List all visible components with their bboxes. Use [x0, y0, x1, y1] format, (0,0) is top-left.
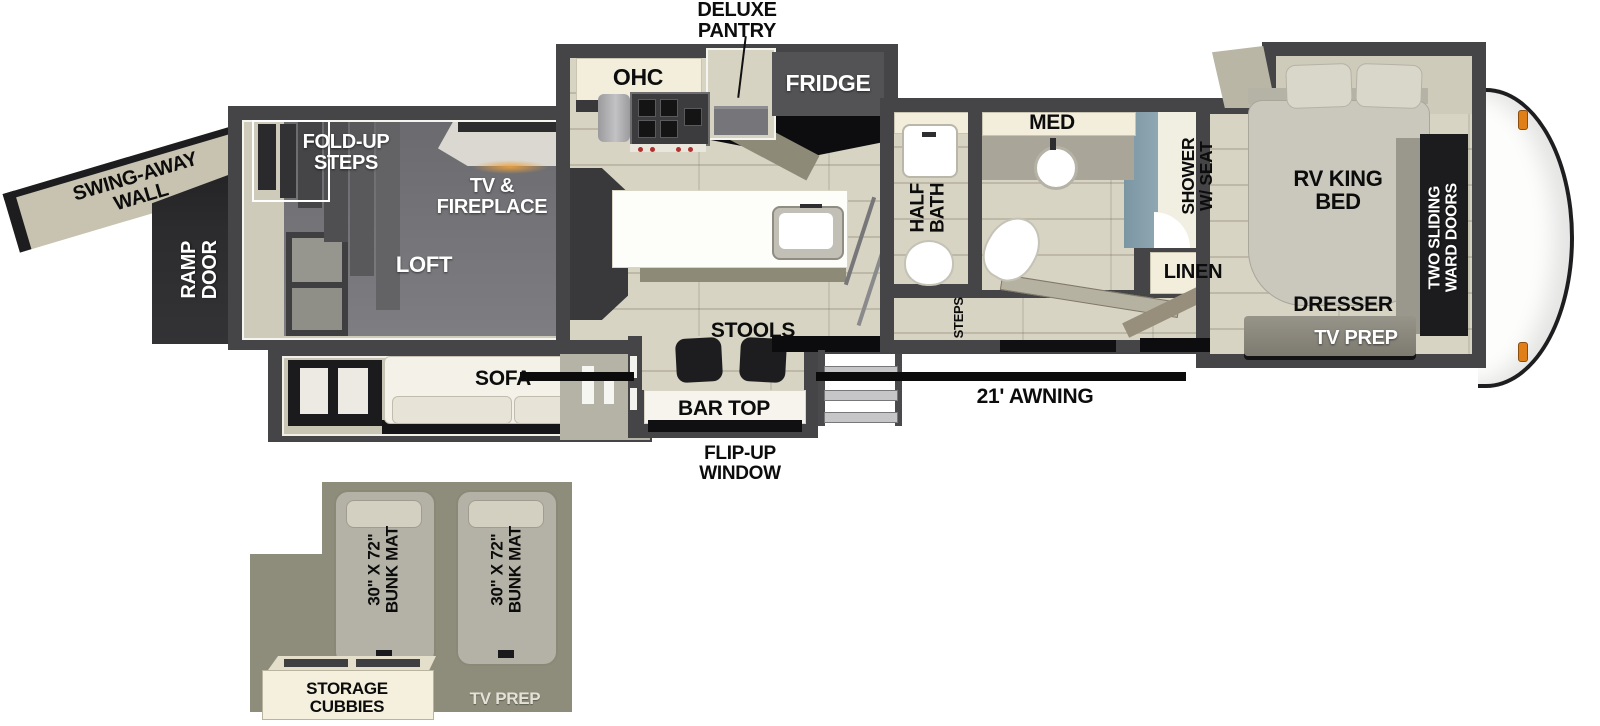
pillow: [1285, 63, 1352, 109]
ward-doors-label: TWO SLIDING WARD DOORS: [1427, 173, 1460, 303]
entry-steps: [818, 350, 902, 428]
stove-knob-icon: [650, 147, 655, 152]
fridge-label: FRIDGE: [778, 72, 878, 96]
stove-knob-icon: [638, 147, 643, 152]
faucet-icon: [1050, 138, 1056, 150]
kitchen-sink: [772, 206, 844, 260]
threshold-window: [1000, 340, 1116, 352]
stools-label: STOOLS: [708, 320, 798, 342]
pantry-shelves: [714, 106, 768, 135]
stove-knob-icon: [688, 147, 693, 152]
med-label: MED: [1002, 112, 1102, 134]
half-bath-label: HALF BATH: [908, 163, 948, 253]
deluxe-pantry-label: DELUXE PANTRY: [687, 0, 787, 42]
clearance-light-icon: [1518, 110, 1528, 130]
burner-icon: [660, 120, 678, 138]
window-pane: [292, 288, 342, 330]
tv-icon: [458, 122, 566, 132]
faucet-icon: [922, 132, 936, 137]
storage-cubbies-label: STORAGE CUBBIES: [292, 680, 402, 715]
awning-label: 21' AWNING: [960, 386, 1110, 408]
awning-line: [816, 372, 1186, 381]
stove-knob-icon: [676, 147, 681, 152]
bath-sink: [1034, 146, 1078, 190]
steps-label: STEPS: [952, 290, 966, 346]
sofa-seat-cushion: [392, 396, 512, 424]
wardrobe-door-panel: [1396, 138, 1420, 334]
bath-divider-wall: [968, 98, 982, 292]
dresser-label: DRESSER: [1288, 294, 1398, 316]
step-rung: [824, 412, 898, 423]
appliance: [598, 94, 630, 142]
window-pane: [338, 368, 368, 414]
linen-label: LINEN: [1143, 262, 1243, 283]
pillow: [1355, 63, 1422, 109]
threshold-window: [1140, 338, 1214, 352]
burner-icon: [684, 108, 702, 126]
slideout-window: [288, 360, 382, 426]
rv-king-bed-label: RV KING BED: [1288, 168, 1388, 214]
bunk-mat-label: 30" X 72" BUNK MAT: [488, 520, 523, 620]
window-pane: [300, 368, 328, 414]
bar-stool: [675, 337, 723, 383]
clearance-light-icon: [1518, 342, 1528, 362]
inset-tv-prep-label: TV PREP: [450, 690, 560, 708]
sofa-label: SOFA: [448, 368, 558, 390]
cubby-slot: [284, 659, 348, 667]
island-shadow: [640, 266, 846, 282]
rv-floorplan-diagram: SWING-AWAY WALL RAMP DOOR FOLD-UP STEPS …: [0, 0, 1600, 726]
burner-icon: [638, 99, 656, 117]
step-rung: [824, 390, 898, 401]
ramp-door-label: RAMP DOOR: [179, 239, 221, 301]
loft-window: [286, 232, 348, 336]
fireplace-glow-icon: [472, 160, 548, 174]
tv-prep-label: TV PREP: [1296, 328, 1416, 349]
sink-basin: [779, 213, 833, 249]
loft-label: LOFT: [374, 254, 474, 277]
bar-counter-edge: [648, 420, 802, 432]
fold-up-steps-label: FOLD-UP STEPS: [292, 132, 400, 174]
mat-handle-icon: [498, 650, 514, 658]
shower-label: SHOWER W/ SEAT: [1179, 132, 1215, 220]
faucet-icon: [800, 204, 822, 208]
flip-up-window-label: FLIP-UP WINDOW: [690, 444, 790, 484]
ohc-label: OHC: [588, 66, 688, 90]
burner-icon: [638, 120, 656, 138]
bunk-mat-label: 30" X 72" BUNK MAT: [365, 520, 400, 620]
window-pane: [292, 238, 342, 282]
stove-cooktop: [630, 92, 710, 146]
cubby-slot: [356, 659, 420, 667]
window-slot: [630, 388, 637, 410]
bar-top-label: BAR TOP: [669, 398, 779, 420]
tv-fireplace-label: TV & FIREPLACE: [432, 176, 552, 218]
burner-icon: [660, 99, 678, 117]
storage-cubbies-top: [268, 656, 436, 670]
